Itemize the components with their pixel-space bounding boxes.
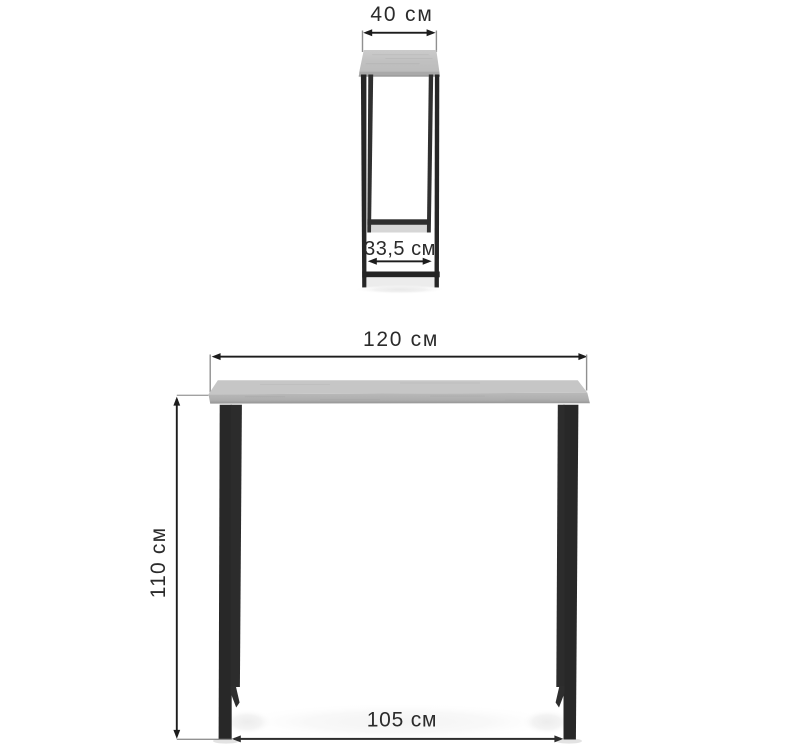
svg-text:105 см: 105 см: [367, 709, 438, 732]
svg-text:33,5 см: 33,5 см: [364, 238, 436, 260]
svg-text:110 см: 110 см: [147, 527, 170, 598]
svg-text:120 см: 120 см: [363, 328, 439, 351]
svg-text:40 см: 40 см: [370, 3, 433, 26]
